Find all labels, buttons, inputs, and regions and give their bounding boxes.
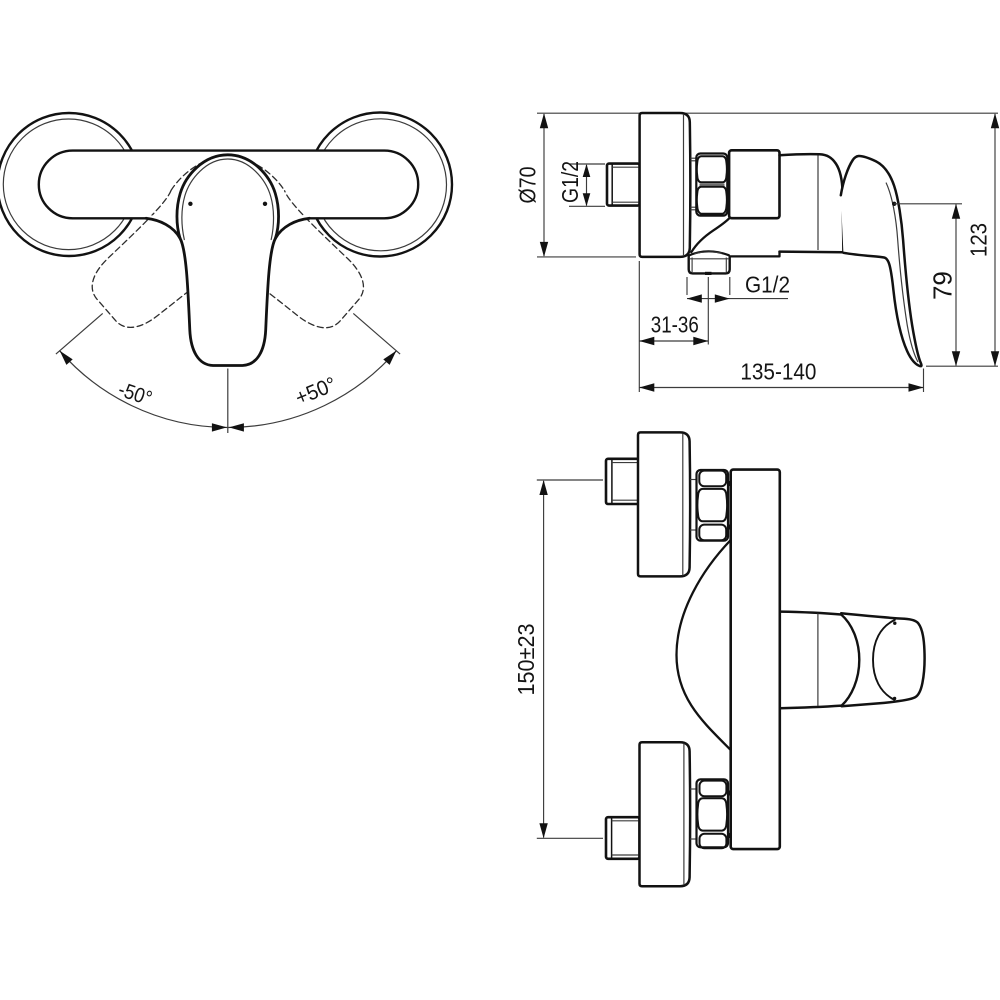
- svg-text:79: 79: [928, 271, 958, 300]
- svg-text:31-36: 31-36: [651, 311, 699, 337]
- svg-text:Ø70: Ø70: [515, 167, 541, 204]
- svg-text:G1/2: G1/2: [745, 272, 790, 298]
- svg-text:123: 123: [966, 223, 992, 257]
- svg-text:135-140: 135-140: [740, 358, 816, 384]
- svg-text:150±23: 150±23: [513, 624, 539, 696]
- svg-text:G1/2: G1/2: [557, 161, 583, 203]
